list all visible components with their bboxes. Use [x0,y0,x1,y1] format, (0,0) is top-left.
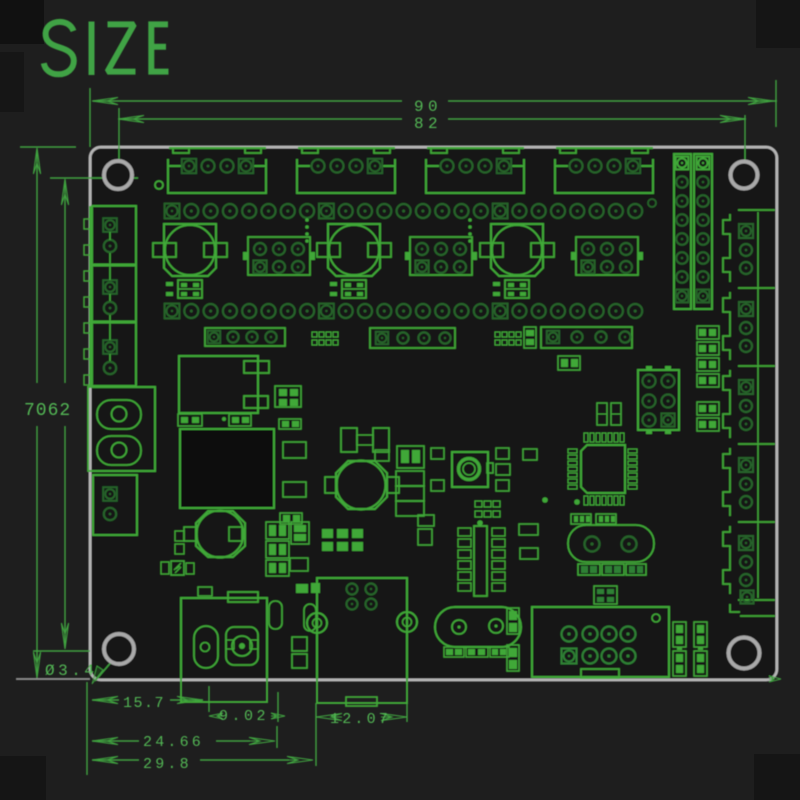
svg-text:24.66: 24.66 [143,734,204,751]
svg-text:15.7: 15.7 [123,695,165,712]
svg-text:90: 90 [414,98,442,116]
svg-text:9.02: 9.02 [219,708,269,725]
svg-text:82: 82 [414,115,442,133]
svg-text:29.8: 29.8 [143,756,192,773]
svg-text:12.07: 12.07 [330,711,391,728]
svg-text:Ø3.4: Ø3.4 [45,662,97,680]
svg-text:7062: 7062 [24,401,71,421]
